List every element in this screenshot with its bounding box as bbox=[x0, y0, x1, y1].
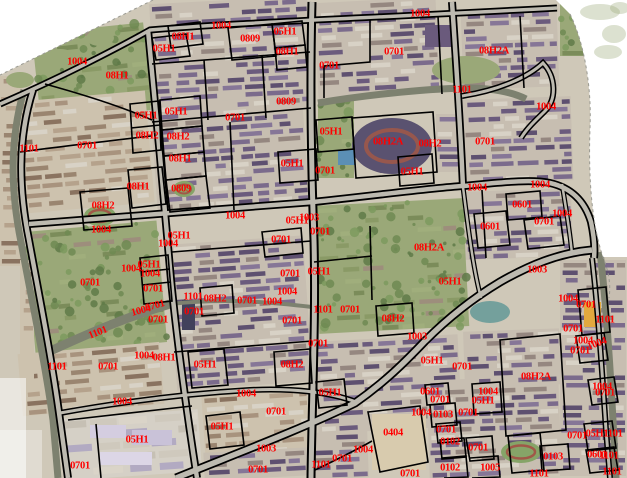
parcel-label: 0701 bbox=[266, 407, 286, 418]
parcel-label: 1101 bbox=[313, 305, 332, 316]
parcel-label: 0701 bbox=[148, 315, 168, 326]
parcel-label: 0701 bbox=[70, 461, 90, 472]
parcel-label: 0809 bbox=[240, 34, 260, 45]
parcel-label: 0701 bbox=[567, 431, 587, 442]
parcel-label: 1004 bbox=[467, 183, 488, 194]
parcel-label: 1003 bbox=[256, 444, 276, 455]
parcel-label: 0701 bbox=[576, 300, 596, 311]
parcel-label: 1004 bbox=[536, 102, 557, 113]
parcel-label: 05H1 bbox=[439, 277, 462, 288]
parcel-label: 0701 bbox=[430, 395, 450, 406]
parcel-label: 1101 bbox=[595, 315, 614, 326]
parcel-label: 0701 bbox=[184, 307, 204, 318]
parcel-label: 1003 bbox=[407, 332, 427, 343]
parcel-label: 1004 bbox=[410, 9, 431, 20]
parcel-label: 1004 bbox=[140, 269, 161, 280]
parcel-label: 0701 bbox=[237, 296, 257, 307]
faded-photo-blob bbox=[594, 45, 622, 59]
parcel-label: 1004 bbox=[67, 57, 88, 68]
parcel-label: 05H1 bbox=[421, 356, 444, 367]
parcel-label: 08H2 bbox=[136, 131, 159, 142]
parcel-label: 0701 bbox=[458, 408, 478, 419]
parcel-label: 0103 bbox=[433, 410, 453, 421]
tree-patch bbox=[432, 56, 500, 84]
parcel-label: 1004 bbox=[262, 297, 283, 308]
parcel-label: 08H2 bbox=[281, 360, 304, 371]
parcel-label: 0601 bbox=[480, 222, 500, 233]
parcel-label: 05H1 bbox=[319, 388, 342, 399]
parcel-label: 05H1 bbox=[126, 435, 149, 446]
parcel-label: 0809 bbox=[171, 184, 191, 195]
parcel-label: 08H1 bbox=[276, 47, 299, 58]
cadastral-map-svg: 100408H105H108H11004080905H108H107011004… bbox=[0, 0, 627, 478]
parcel-label: 0701 bbox=[534, 217, 554, 228]
parcel-label: 1004 bbox=[552, 209, 573, 220]
parcel-label: 0701 bbox=[400, 469, 420, 478]
tree-patch bbox=[6, 72, 34, 88]
parcel-label: 1005 bbox=[480, 463, 500, 474]
parcel-label: 0701 bbox=[436, 425, 456, 436]
parcel-label: 0701 bbox=[340, 305, 360, 316]
parcel-label: 05H1 bbox=[401, 167, 424, 178]
parcel-label: 05H1 bbox=[281, 159, 304, 170]
parcel-label: 0701 bbox=[280, 269, 300, 280]
parcel-label: 1101 bbox=[603, 429, 622, 440]
parcel-label: 08H2 bbox=[167, 132, 190, 143]
parcel-label: 0809 bbox=[276, 97, 296, 108]
parcel-label: 08H1 bbox=[153, 353, 176, 364]
parcel-label: 05H1 bbox=[320, 127, 343, 138]
large-building bbox=[90, 425, 126, 438]
parcel-label: 1004 bbox=[236, 389, 257, 400]
parcel-label: 0701 bbox=[595, 388, 615, 399]
parcel-label: 1101 bbox=[311, 460, 330, 471]
parcel-label: 08H1 bbox=[169, 154, 192, 165]
parcel-label: 1004 bbox=[225, 211, 246, 222]
parcel-label: 0701 bbox=[319, 61, 339, 72]
parcel-label: 0701 bbox=[475, 137, 495, 148]
parcel-label: 0601 bbox=[512, 200, 532, 211]
parcel-label: 05H1 bbox=[165, 107, 188, 118]
parcel-label: 0404 bbox=[383, 428, 404, 439]
parcel-label: 1004 bbox=[158, 239, 179, 250]
parcel-label: 1101 bbox=[47, 362, 66, 373]
parcel-label: 0701 bbox=[315, 166, 335, 177]
parcel-label: 1101 bbox=[183, 292, 202, 303]
parcel-label: 0701 bbox=[248, 465, 268, 476]
parcel-label: 08H2 bbox=[92, 201, 115, 212]
parcel-label: 1004 bbox=[530, 180, 551, 191]
parcel-label: 08H2A bbox=[521, 372, 552, 383]
parcel-label: 08H2 bbox=[419, 139, 442, 150]
parcel-label: 0701 bbox=[310, 227, 330, 238]
photo-block bbox=[372, 414, 426, 470]
parcel-label: 0103 bbox=[543, 452, 563, 463]
parcel-label: 1004 bbox=[121, 264, 142, 275]
parcel-label: 08H2 bbox=[382, 314, 405, 325]
parcel-label: 1101 bbox=[599, 451, 618, 462]
parcel-label: 1004 bbox=[353, 445, 374, 456]
parcel-label: 05H1 bbox=[308, 267, 331, 278]
parcel-label: 0701 bbox=[80, 278, 100, 289]
parcel-label: 0701 bbox=[468, 443, 488, 454]
parcel-label: 0701 bbox=[143, 284, 163, 295]
tree-patch bbox=[86, 30, 114, 46]
photo-edge-fade bbox=[0, 430, 42, 478]
large-building bbox=[100, 452, 152, 465]
cadastral-map-canvas: 100408H105H108H11004080905H108H107011004… bbox=[0, 0, 627, 478]
parcel-label: 0701 bbox=[225, 113, 245, 124]
parcel-label: 05H1 bbox=[286, 216, 309, 227]
parcel-label: 0701 bbox=[98, 362, 118, 373]
parcel-label: 0102 bbox=[440, 437, 460, 448]
parcel-label: 1004 bbox=[411, 408, 432, 419]
parcel-label: 1004 bbox=[211, 21, 232, 32]
parcel-label: 05H1 bbox=[135, 111, 158, 122]
parcel-label: 08H2 bbox=[204, 294, 227, 305]
parcel-label: 1101 bbox=[19, 144, 38, 155]
parcel-label: 05H1 bbox=[194, 360, 217, 371]
parcel-label: 1101 bbox=[529, 469, 548, 478]
parcel-label: 0701 bbox=[77, 141, 97, 152]
parcel-label: 08H1 bbox=[172, 32, 195, 43]
parcel-label: 0701 bbox=[308, 339, 328, 350]
swimming-pool bbox=[338, 150, 355, 165]
parcel-label: 0701 bbox=[384, 47, 404, 58]
pond bbox=[470, 301, 510, 323]
parcel-label: 0701 bbox=[570, 346, 590, 357]
parcel-label: 0701 bbox=[271, 235, 291, 246]
parcel-label: 1004 bbox=[112, 397, 133, 408]
parcel-label: 08H1 bbox=[106, 71, 129, 82]
parcel-label: 08H2A bbox=[373, 137, 404, 148]
parcel-label: 05H1 bbox=[274, 27, 297, 38]
parcel-label: 05H1 bbox=[472, 396, 495, 407]
parcel-label: 1101 bbox=[452, 85, 471, 96]
parcel-label: 05H1 bbox=[153, 44, 176, 55]
parcel-label: 1003 bbox=[527, 265, 547, 276]
parcel-label: 08H1 bbox=[127, 182, 150, 193]
faded-photo-blob bbox=[602, 25, 626, 43]
parcel-label: 0701 bbox=[282, 316, 302, 327]
parcel-label: 08H2A bbox=[479, 46, 510, 57]
parcel-label: 1004 bbox=[91, 225, 112, 236]
parcel-label: 08H2A bbox=[414, 243, 445, 254]
parcel-label: 0701 bbox=[332, 454, 352, 465]
parcel-label: 0701 bbox=[452, 362, 472, 373]
parcel-label: 05H1 bbox=[211, 422, 234, 433]
parcel-label: 0701 bbox=[563, 324, 583, 335]
parcel-label: 0102 bbox=[440, 463, 460, 474]
parcel-label: 1101 bbox=[602, 467, 621, 478]
